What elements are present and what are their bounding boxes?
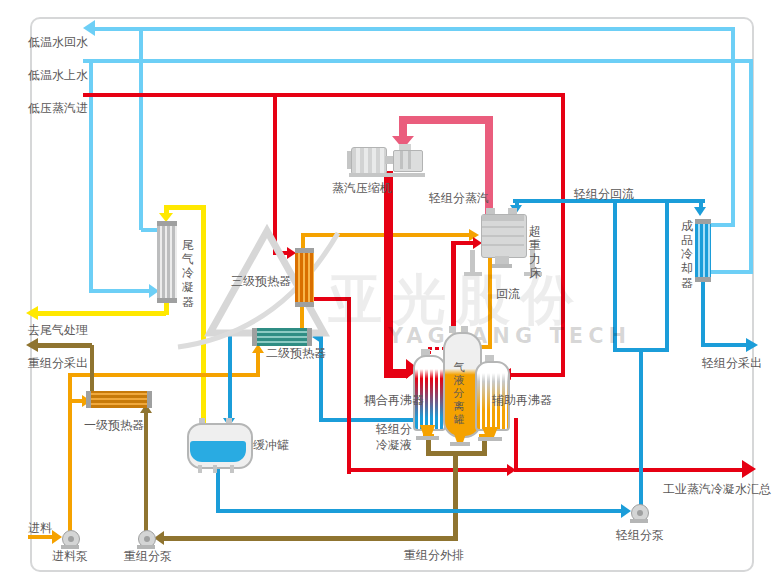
preheater2-cap-right xyxy=(307,328,312,346)
pipe-reflux-leg-right xyxy=(665,199,669,352)
label-compressor: 蒸汽压缩机 xyxy=(332,180,392,197)
rpb-bottom-flange xyxy=(492,264,512,268)
aux-reboiler-flange xyxy=(478,437,502,441)
compressor-band2 xyxy=(408,151,411,169)
label-light-pump: 轻组分泵 xyxy=(616,527,664,544)
pipe-condenser-supply-in xyxy=(89,289,149,293)
preheater1-body xyxy=(91,391,147,408)
label-tailgas-condenser: 尾气冷凝器 xyxy=(181,238,195,309)
compressor-base xyxy=(349,173,425,177)
pipe-cooler-bottom-out xyxy=(701,281,705,347)
pipe-heavypump-riser xyxy=(144,412,148,533)
rpb-line2 xyxy=(482,235,524,237)
process-flow-diagram: 亚光股份 YAGUANG TECH xyxy=(0,0,780,585)
pipe-into-preheater1 xyxy=(68,399,82,403)
label-cooling-supply: 低温水上水 xyxy=(28,67,88,84)
compressor-motor xyxy=(351,147,387,175)
label-light-draw: 轻组分采出 xyxy=(702,355,762,372)
separator-flange xyxy=(450,442,470,446)
pipe-condensate-run xyxy=(347,468,507,472)
buffer-tank-liquid xyxy=(190,441,246,462)
pipe-tank-to-lightpump xyxy=(216,509,621,513)
buffer-tank-leg3 xyxy=(230,465,234,473)
label-lp-steam-in: 低压蒸汽进 xyxy=(28,100,88,117)
preheater2-body xyxy=(257,328,307,346)
label-reflux: 回流 xyxy=(496,286,520,303)
preheater3-body xyxy=(295,253,314,302)
arrow-light-draw-out xyxy=(746,338,758,352)
label-feed-pump: 进料泵 xyxy=(52,548,88,565)
label-coupled-reboiler: 耦合再沸器 xyxy=(364,392,424,409)
pipe-lightpump-riser xyxy=(639,348,643,506)
label-rpb: 超重力床 xyxy=(528,224,542,281)
light-pump-hub xyxy=(637,510,643,516)
label-light-condensate: 轻组分冷凝液 xyxy=(376,422,416,453)
arrow-condensate-exit xyxy=(742,460,756,478)
coupled-reboiler-flange xyxy=(416,436,439,440)
pipe-vapor-drop xyxy=(399,116,407,138)
compressor-band1 xyxy=(400,151,403,169)
label-preheater1: 一级预热器 xyxy=(84,417,144,434)
arrow-feed-into-pump xyxy=(52,530,62,544)
rpb-line1 xyxy=(482,226,524,228)
pipe-lp-steam-header xyxy=(83,93,563,97)
pipe-cooler-supply-riser xyxy=(749,59,753,274)
label-heavy-draw: 重组分采出 xyxy=(28,355,88,372)
label-condensate-header: 工业蒸汽冷凝水汇总 xyxy=(663,481,771,498)
rpb-foot-left xyxy=(464,272,482,276)
buffer-tank-leg1 xyxy=(198,465,202,473)
feed-pump-hub xyxy=(68,536,74,542)
label-cooling-return: 低温水回水 xyxy=(28,34,88,51)
arrow-heavy-draw-out xyxy=(26,338,38,352)
pipe-cooler-return-riser xyxy=(731,27,735,227)
label-buffer-tank: 缓冲罐 xyxy=(253,437,289,454)
label-preheater3: 三级预热器 xyxy=(231,273,291,290)
pipe-to-tailgas-treatment xyxy=(38,311,166,316)
arrow-into-light-pump xyxy=(621,504,631,518)
arrow-tailgas-out xyxy=(26,306,38,320)
label-to-tailgas: 去尾气处理 xyxy=(28,322,88,339)
pipe-aux-condensate-down xyxy=(514,418,518,472)
label-separator: 气液分离罐 xyxy=(452,362,466,427)
light-pump-base xyxy=(630,519,648,523)
pipe-heavy-draw-run xyxy=(38,343,92,348)
rpb-line3 xyxy=(482,244,524,246)
pipe-tailgas-top xyxy=(164,205,204,210)
product-cooler-cap-bottom xyxy=(695,277,711,282)
tailgas-condenser-body xyxy=(157,226,177,298)
pipe-cooling-return-header xyxy=(95,27,733,31)
pipe-cooling-supply-header xyxy=(83,59,751,63)
label-aux-reboiler: 辅助再沸器 xyxy=(492,392,552,409)
pipe-heavy-to-pump xyxy=(164,536,458,541)
label-feed: 进料 xyxy=(28,520,52,537)
compressor-shaft xyxy=(385,156,393,164)
label-preheater2: 二级预热器 xyxy=(266,345,326,362)
label-light-reflux: 轻组分回流 xyxy=(574,186,634,203)
tailgas-condenser-cap-bottom xyxy=(157,298,177,303)
pipe-discharge-elbow xyxy=(384,369,408,378)
watermark-cn: 亚光股份 xyxy=(328,268,584,331)
preheater1-cap-right xyxy=(147,391,152,408)
label-product-cooler: 成品冷却器 xyxy=(680,219,694,290)
label-heavy-discharge: 重组分外排 xyxy=(404,547,464,564)
heavy-pump-hub xyxy=(144,536,150,542)
preheater3-cap-bottom xyxy=(295,302,314,307)
label-heavy-pump: 重组分泵 xyxy=(124,548,172,565)
pipe-condensate-header-out xyxy=(514,468,742,472)
rpb-top-band xyxy=(482,215,524,221)
pipe-condenser-return-riser xyxy=(139,27,143,230)
label-light-vapor: 轻组分蒸汽 xyxy=(429,190,489,207)
pipe-light-draw-run xyxy=(701,343,748,347)
rpb-bottom-stub xyxy=(495,256,509,264)
pipe-heavy-discharge-down xyxy=(453,451,458,540)
pipe-steam-aux-in xyxy=(510,373,563,377)
watermark-en: YAGUANG TECH xyxy=(387,324,631,348)
rpb-leg-left xyxy=(470,250,475,274)
pipe-cooler-supply-in xyxy=(710,270,751,274)
product-cooler-body xyxy=(695,224,711,277)
buffer-tank-leg2 xyxy=(213,465,217,473)
pipe-preheater1-out-riser xyxy=(90,345,94,392)
arrow-into-cooler-top xyxy=(694,207,706,216)
pipe-vapor-top-run xyxy=(399,116,493,124)
